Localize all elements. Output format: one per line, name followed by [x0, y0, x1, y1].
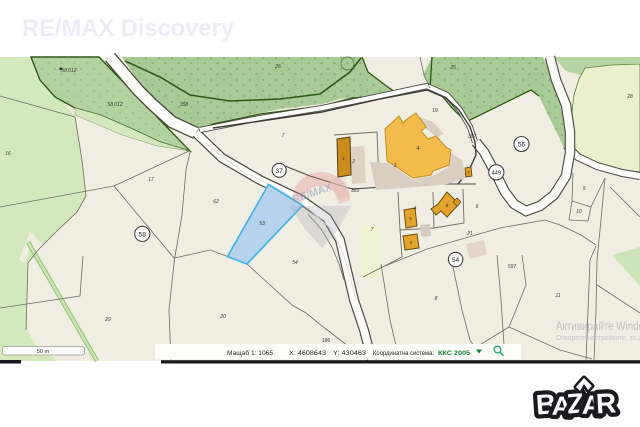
svg-text:387: 387 [468, 134, 477, 140]
svg-text:53: 53 [259, 221, 265, 227]
svg-text:19: 19 [432, 108, 438, 114]
svg-text:54: 54 [292, 260, 298, 266]
svg-text:7: 7 [371, 227, 374, 233]
svg-text:58: 58 [139, 231, 147, 238]
svg-text:56: 56 [518, 142, 526, 149]
svg-text:7: 7 [467, 170, 470, 175]
svg-text:62: 62 [213, 199, 219, 205]
svg-text:17: 17 [148, 177, 154, 183]
svg-text:8: 8 [435, 296, 438, 302]
svg-text:ККС 2005: ККС 2005 [438, 350, 470, 357]
svg-text:597: 597 [508, 264, 517, 270]
svg-text:7: 7 [282, 133, 285, 139]
svg-text:1: 1 [342, 156, 345, 161]
svg-text:449: 449 [491, 171, 501, 177]
svg-text:Мащаб 1: 1065: Мащаб 1: 1065 [227, 349, 273, 357]
svg-text:4: 4 [416, 146, 419, 152]
svg-text:383: 383 [351, 188, 360, 194]
svg-text:5: 5 [409, 216, 412, 221]
svg-text:58.012: 58.012 [107, 102, 123, 108]
svg-text:16: 16 [5, 151, 11, 157]
svg-text:358: 358 [180, 102, 189, 108]
svg-text:9: 9 [446, 203, 449, 208]
svg-text:37: 37 [276, 168, 284, 175]
svg-text:Координатна система:: Координатна система: [373, 350, 434, 357]
svg-text:26: 26 [274, 64, 281, 70]
svg-text:Активирайте Windo: Активирайте Windo [556, 321, 640, 333]
svg-text:9: 9 [583, 186, 586, 192]
svg-text:11: 11 [555, 293, 560, 299]
svg-text:R: R [595, 387, 617, 419]
svg-text:X: 4608643: X: 4608643 [289, 350, 326, 357]
svg-text:RE/MAX Discovery: RE/MAX Discovery [22, 15, 234, 42]
svg-text:54: 54 [452, 257, 460, 264]
svg-text:21: 21 [466, 231, 473, 237]
svg-text:25: 25 [449, 65, 456, 71]
svg-text:Отворете настройките, за д: Отворете настройките, за д [556, 334, 640, 342]
svg-text:3: 3 [394, 163, 397, 169]
svg-text:Y: 430463: Y: 430463 [333, 350, 366, 357]
svg-text:58.012: 58.012 [61, 68, 77, 74]
svg-text:28: 28 [626, 94, 633, 100]
svg-text:6: 6 [476, 204, 479, 210]
svg-text:5: 5 [410, 240, 413, 245]
svg-text:186: 186 [322, 338, 331, 344]
svg-text:4: 4 [414, 206, 417, 212]
svg-text:20: 20 [219, 314, 226, 320]
svg-text:50 m: 50 m [37, 349, 50, 355]
svg-text:29: 29 [104, 317, 111, 323]
svg-text:2: 2 [351, 159, 355, 165]
svg-text:10: 10 [576, 209, 582, 215]
